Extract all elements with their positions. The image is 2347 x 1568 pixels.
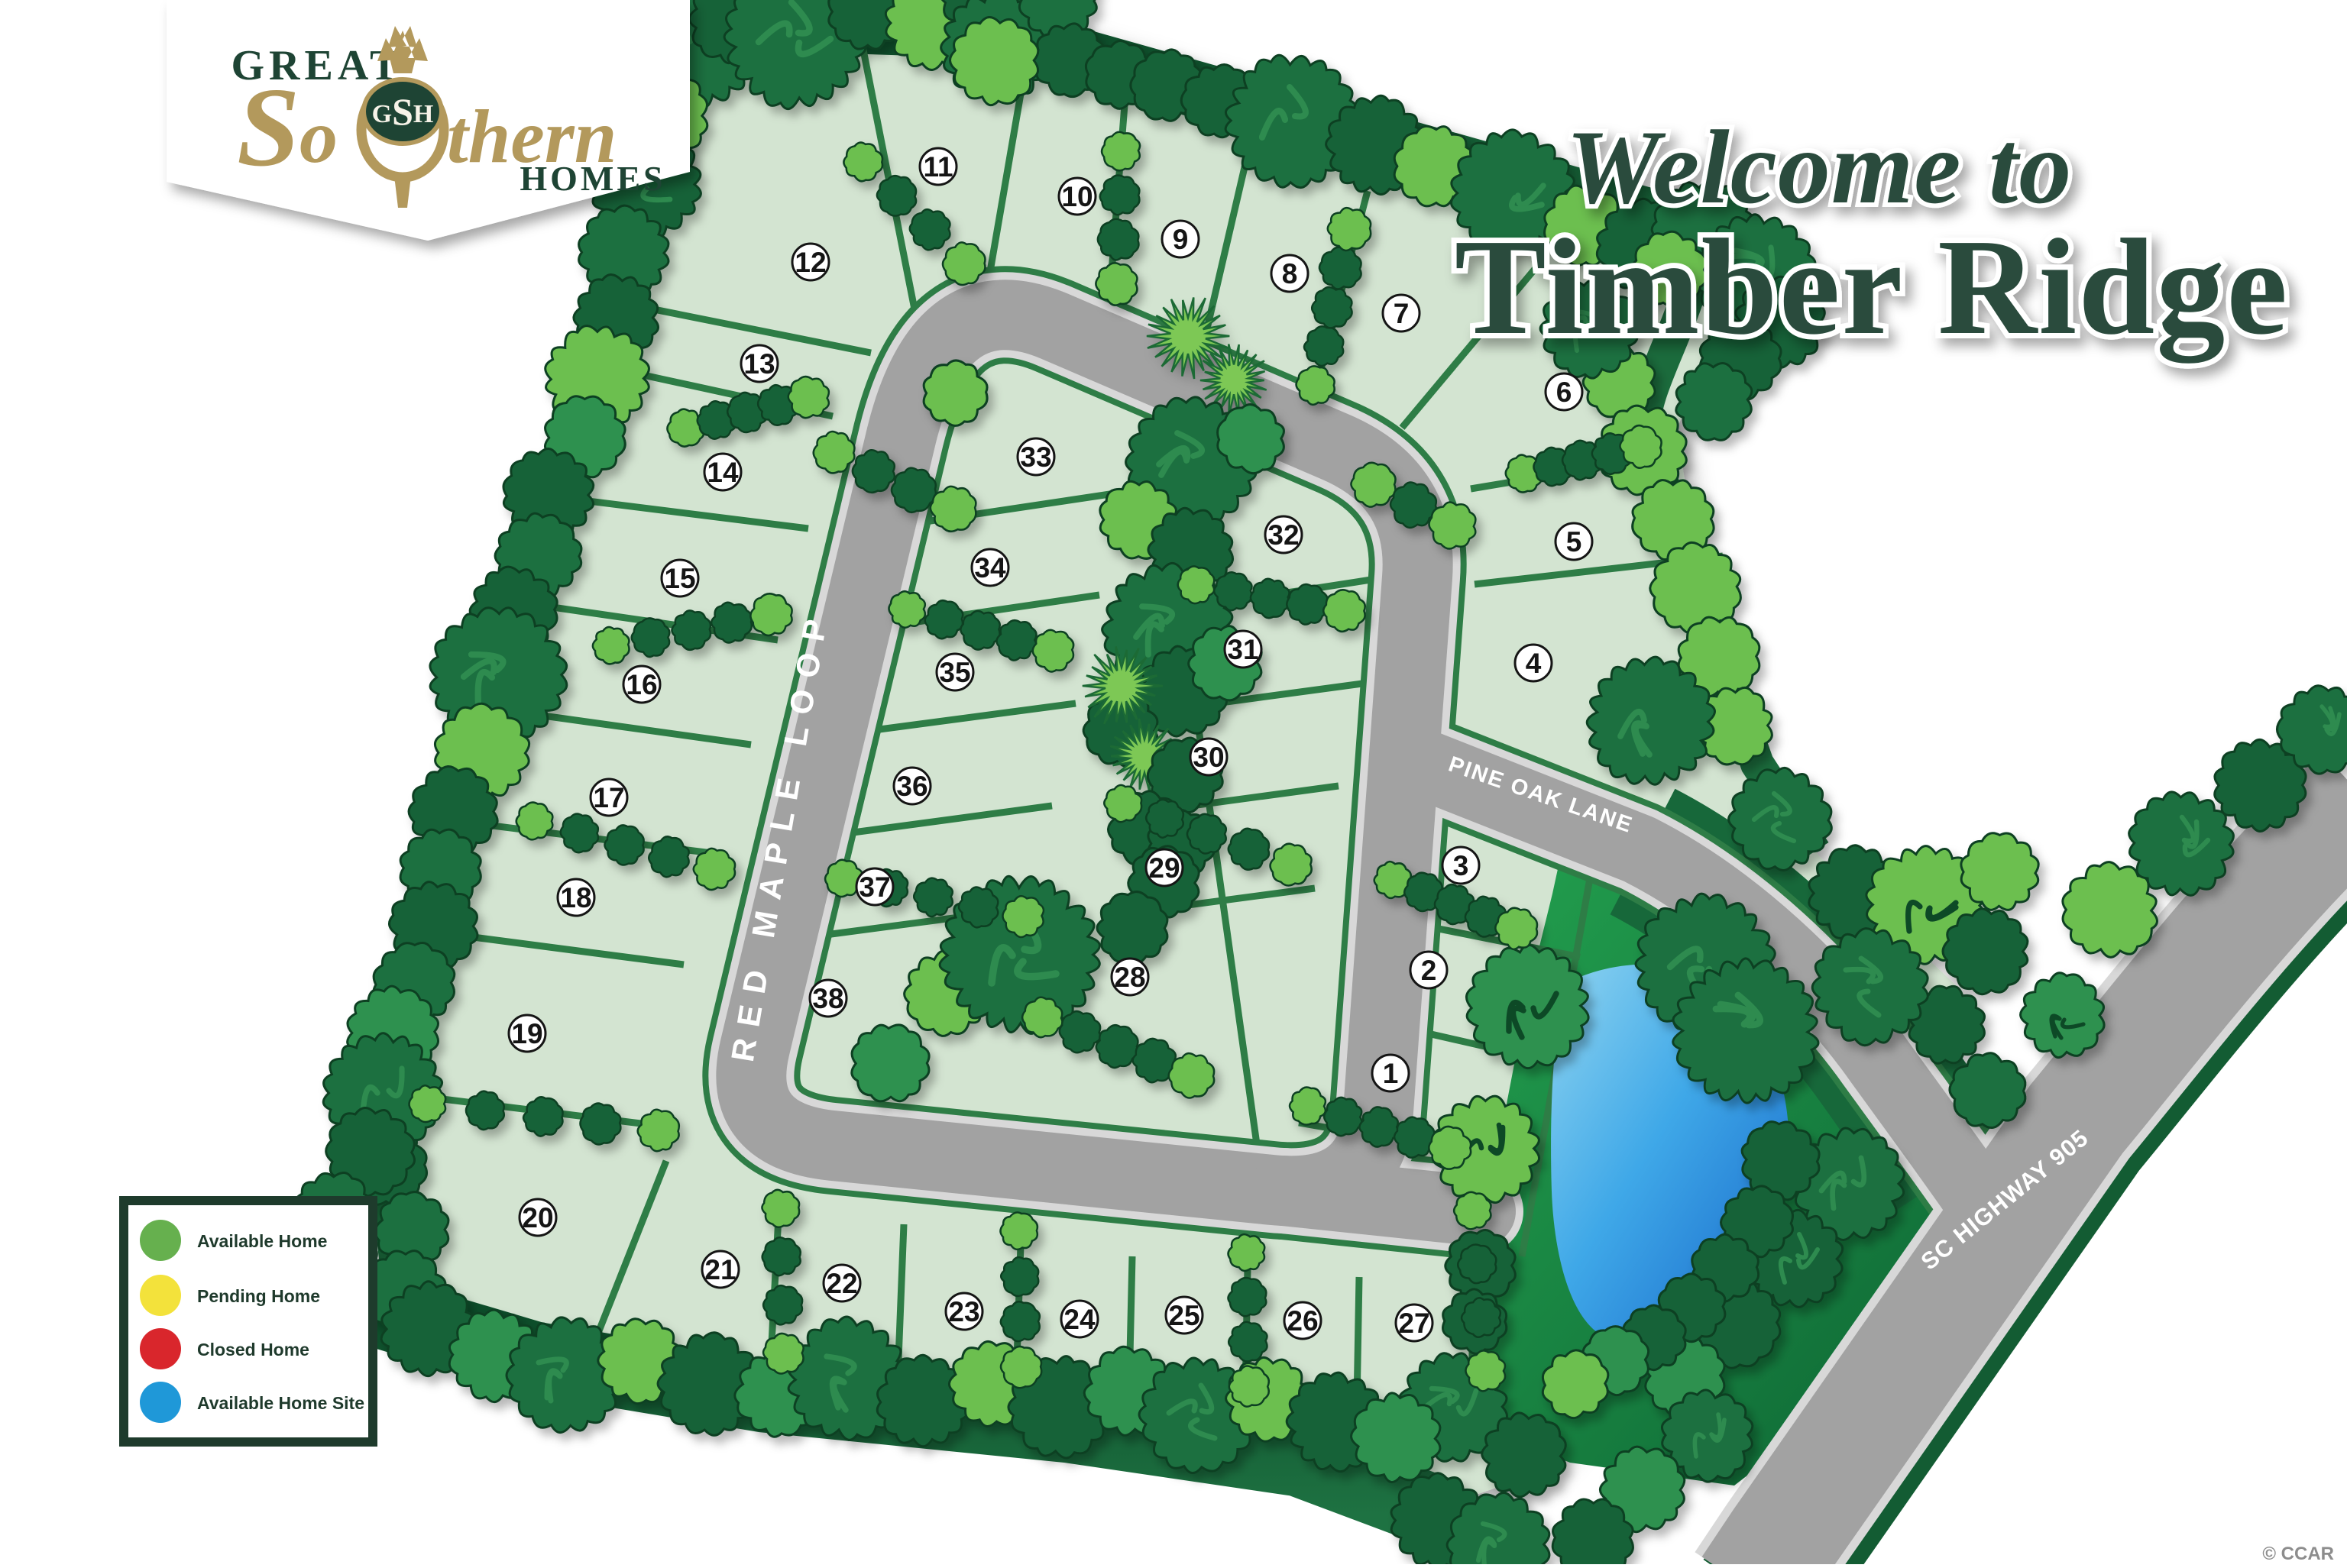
svg-text:18: 18	[560, 882, 591, 913]
svg-text:36: 36	[896, 771, 927, 802]
svg-text:10: 10	[1061, 181, 1093, 212]
svg-text:22: 22	[826, 1268, 857, 1299]
svg-text:17: 17	[593, 782, 624, 813]
svg-text:3: 3	[1453, 850, 1469, 881]
svg-text:© CCAR: © CCAR	[2262, 1544, 2334, 1564]
svg-text:thern: thern	[447, 94, 617, 179]
svg-text:12: 12	[795, 247, 826, 278]
svg-text:Available Home: Available Home	[197, 1231, 327, 1251]
svg-text:20: 20	[522, 1202, 553, 1233]
svg-text:11: 11	[923, 151, 953, 183]
svg-text:31: 31	[1227, 634, 1258, 665]
svg-text:21: 21	[704, 1254, 736, 1285]
svg-text:28: 28	[1114, 962, 1145, 993]
svg-text:29: 29	[1148, 852, 1180, 884]
svg-text:19: 19	[511, 1018, 542, 1049]
svg-text:8: 8	[1282, 258, 1298, 289]
svg-text:16: 16	[626, 669, 657, 700]
svg-text:26: 26	[1287, 1305, 1318, 1337]
svg-text:o: o	[299, 94, 338, 179]
svg-text:Closed Home: Closed Home	[197, 1340, 309, 1359]
svg-text:33: 33	[1020, 441, 1051, 473]
svg-text:32: 32	[1267, 519, 1299, 551]
svg-text:27: 27	[1398, 1308, 1429, 1339]
svg-text:5: 5	[1566, 526, 1582, 558]
svg-text:15: 15	[664, 563, 695, 594]
svg-text:38: 38	[812, 983, 843, 1014]
svg-text:2: 2	[1421, 955, 1437, 986]
svg-text:23: 23	[948, 1296, 979, 1327]
svg-text:13: 13	[743, 348, 775, 380]
svg-text:37: 37	[859, 871, 890, 903]
svg-text:1: 1	[1383, 1058, 1399, 1089]
svg-text:14: 14	[707, 457, 739, 488]
svg-text:4: 4	[1526, 648, 1542, 679]
svg-text:Welcome to: Welcome to	[1566, 108, 2073, 225]
svg-text:6: 6	[1556, 377, 1572, 408]
svg-text:7: 7	[1394, 298, 1410, 329]
svg-text:35: 35	[939, 657, 970, 688]
svg-text:Pending Home: Pending Home	[197, 1286, 320, 1306]
svg-text:24: 24	[1063, 1304, 1096, 1335]
svg-text:Available Home Site: Available Home Site	[197, 1393, 364, 1413]
svg-text:Timber Ridge: Timber Ridge	[1455, 211, 2289, 364]
svg-text:9: 9	[1173, 224, 1189, 255]
svg-text:30: 30	[1193, 742, 1224, 773]
svg-text:34: 34	[974, 552, 1006, 584]
svg-text:25: 25	[1168, 1300, 1199, 1331]
svg-text:S: S	[237, 65, 299, 190]
